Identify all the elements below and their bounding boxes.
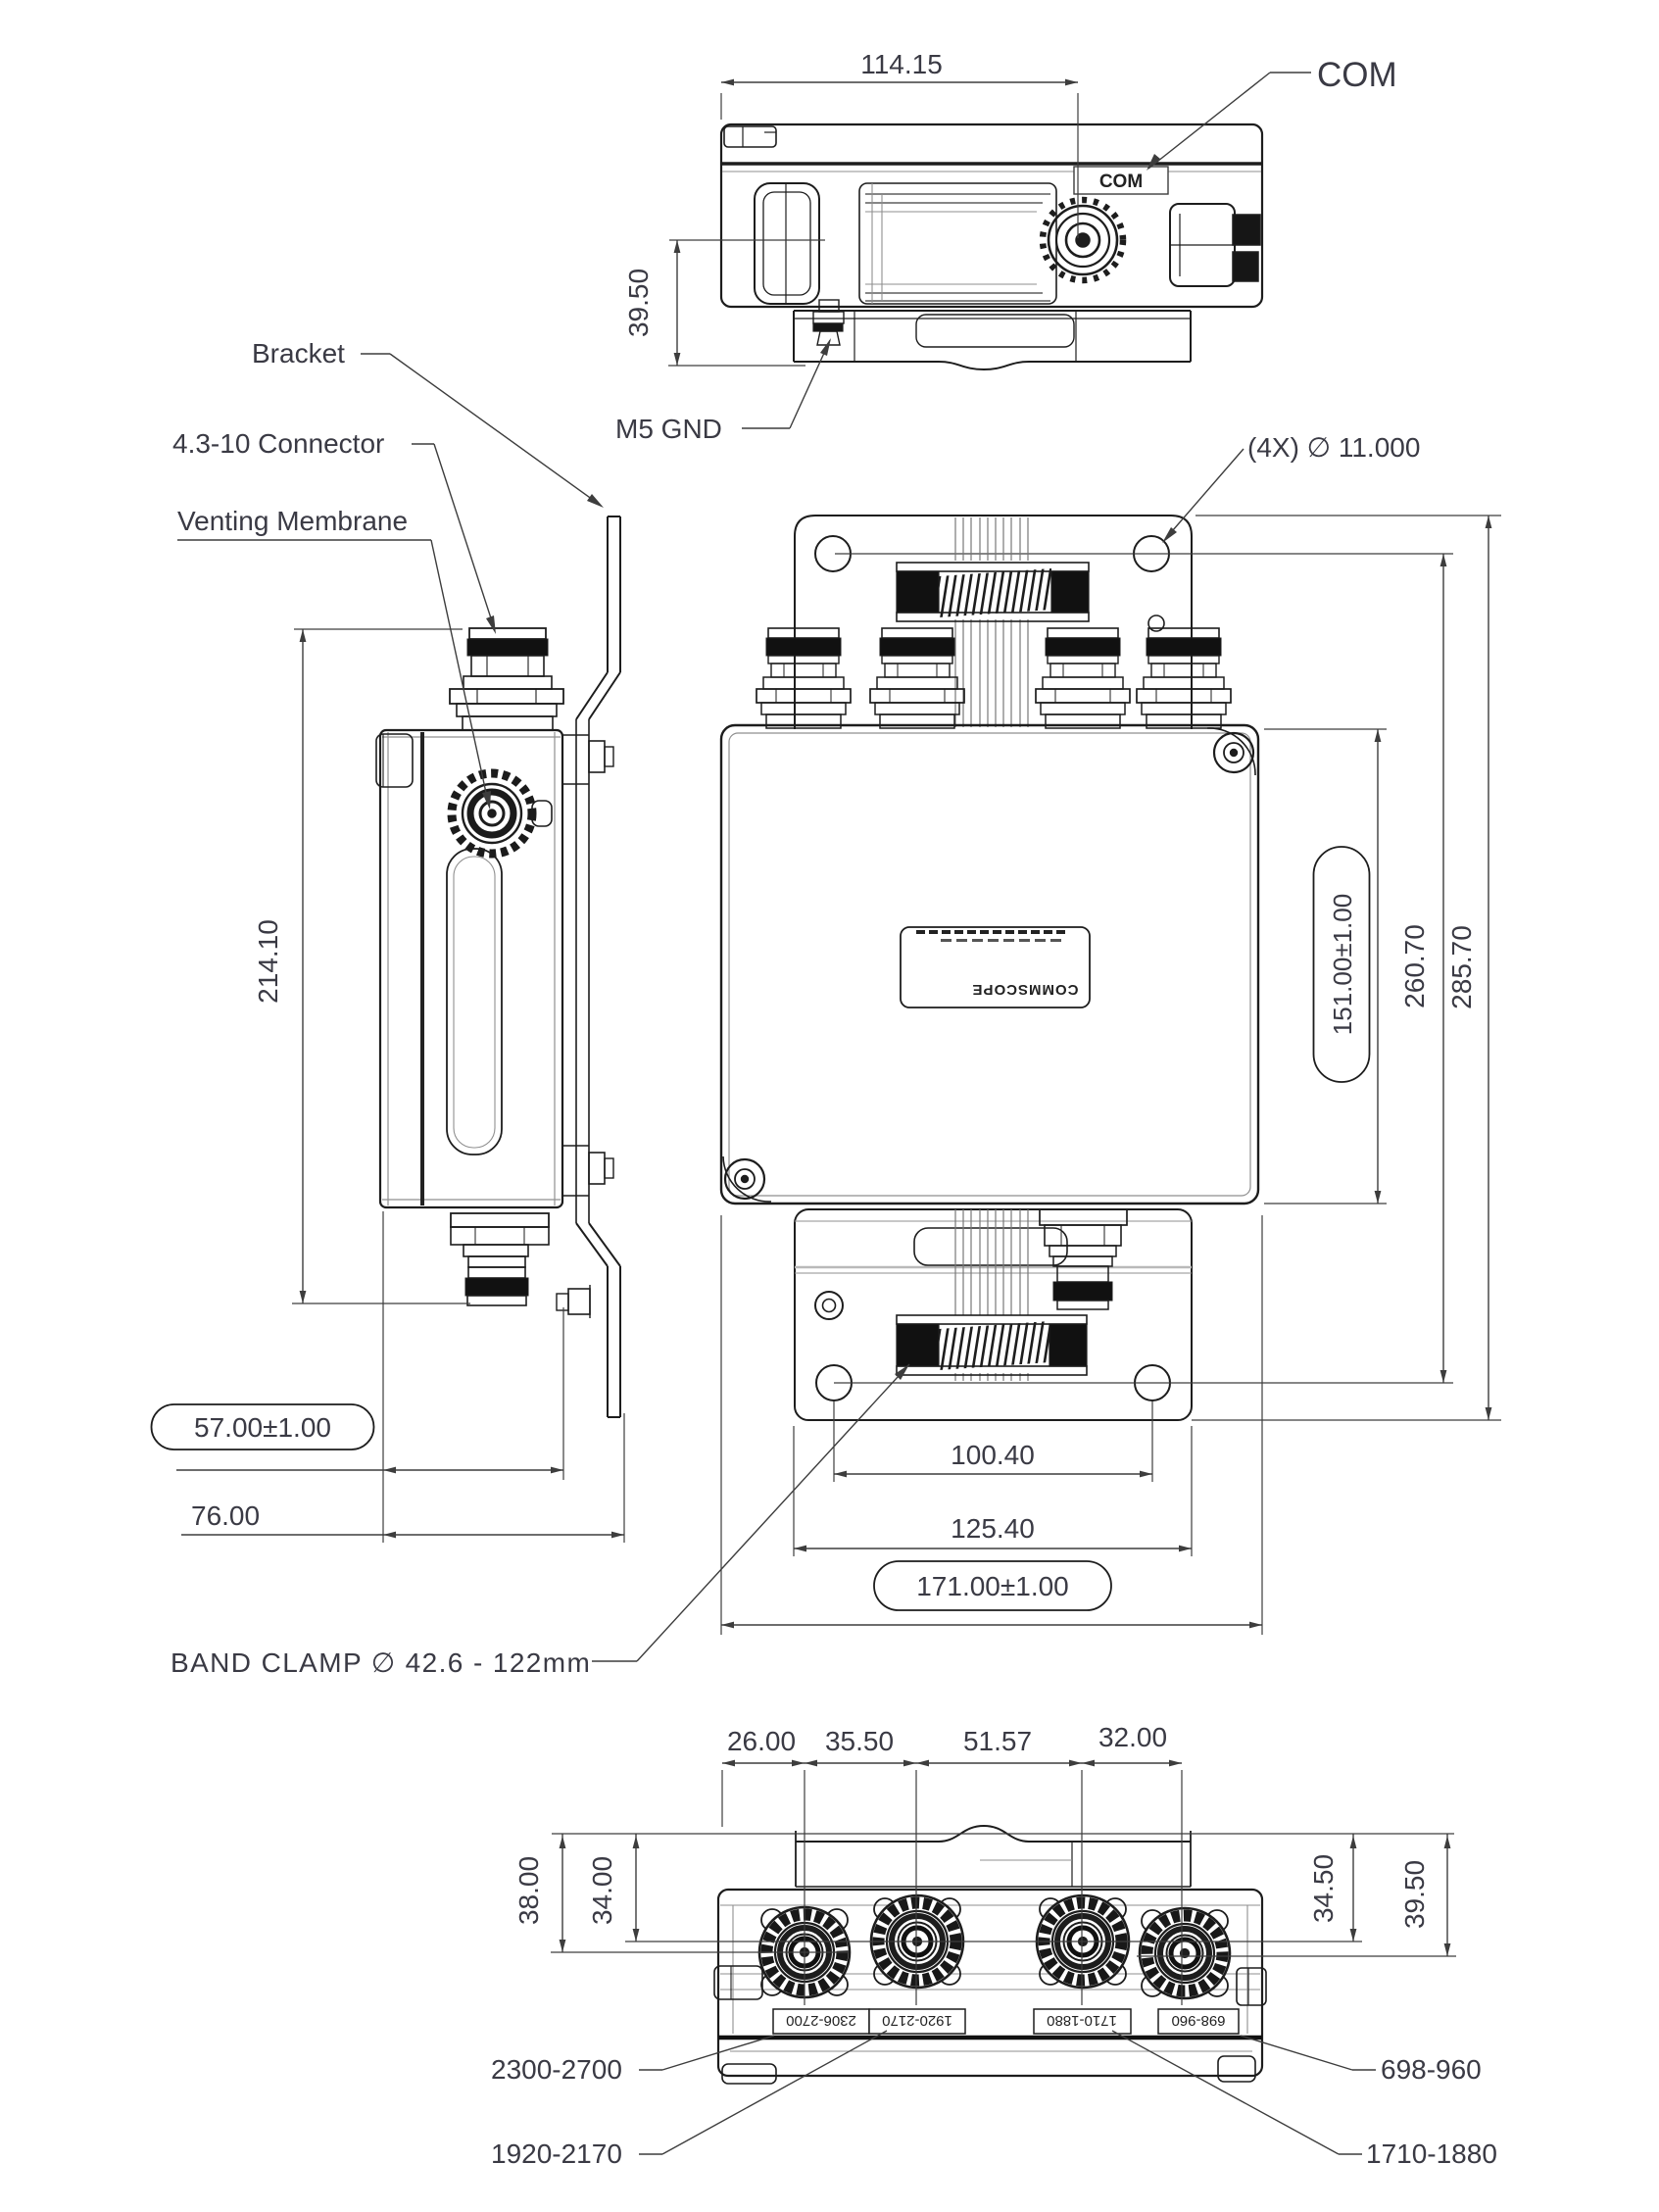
svg-text:BAND CLAMP ∅ 42.6 - 122mm: BAND CLAMP ∅ 42.6 - 122mm [171, 1647, 591, 1678]
svg-text:1710-1880: 1710-1880 [1366, 2138, 1497, 2169]
svg-text:4.3-10 Connector: 4.3-10 Connector [172, 428, 384, 459]
svg-text:1920-2170: 1920-2170 [491, 2138, 622, 2169]
svg-text:57.00±1.00: 57.00±1.00 [194, 1412, 331, 1443]
svg-text:39.50: 39.50 [623, 269, 654, 337]
svg-text:COM: COM [1317, 56, 1397, 94]
svg-text:151.00±1.00: 151.00±1.00 [1328, 894, 1357, 1035]
svg-text:M5 GND: M5 GND [615, 414, 722, 444]
svg-text:COM: COM [1099, 172, 1143, 192]
svg-text:698-960: 698-960 [1171, 2012, 1225, 2029]
svg-text:100.40: 100.40 [951, 1440, 1035, 1470]
svg-text:698-960: 698-960 [1381, 2054, 1482, 2085]
svg-text:285.70: 285.70 [1446, 925, 1477, 1009]
svg-text:35.50: 35.50 [825, 1726, 894, 1756]
svg-text:38.00: 38.00 [513, 1856, 544, 1925]
svg-text:171.00±1.00: 171.00±1.00 [916, 1571, 1069, 1601]
svg-text:51.57: 51.57 [963, 1726, 1032, 1756]
svg-text:26.00: 26.00 [727, 1726, 796, 1756]
svg-text:1920-2170: 1920-2170 [882, 2012, 952, 2029]
svg-text:Venting Membrane: Venting Membrane [177, 506, 408, 536]
svg-text:34.00: 34.00 [587, 1856, 617, 1925]
svg-text:114.15: 114.15 [860, 49, 943, 79]
svg-text:Bracket: Bracket [252, 338, 345, 369]
svg-text:COMMSCOPE: COMMSCOPE [971, 981, 1078, 998]
svg-text:34.50: 34.50 [1308, 1854, 1339, 1923]
svg-text:125.40: 125.40 [951, 1513, 1035, 1544]
svg-text:1710-1880: 1710-1880 [1047, 2012, 1117, 2029]
svg-text:39.50: 39.50 [1399, 1860, 1430, 1929]
svg-text:260.70: 260.70 [1399, 924, 1430, 1008]
svg-text:32.00: 32.00 [1098, 1722, 1167, 1752]
svg-text:2306-2700: 2306-2700 [786, 2012, 856, 2029]
svg-text:(4X) ∅ 11.000: (4X) ∅ 11.000 [1247, 432, 1420, 463]
svg-text:76.00: 76.00 [191, 1500, 260, 1531]
svg-text:214.10: 214.10 [253, 919, 283, 1004]
svg-text:2300-2700: 2300-2700 [491, 2054, 622, 2085]
